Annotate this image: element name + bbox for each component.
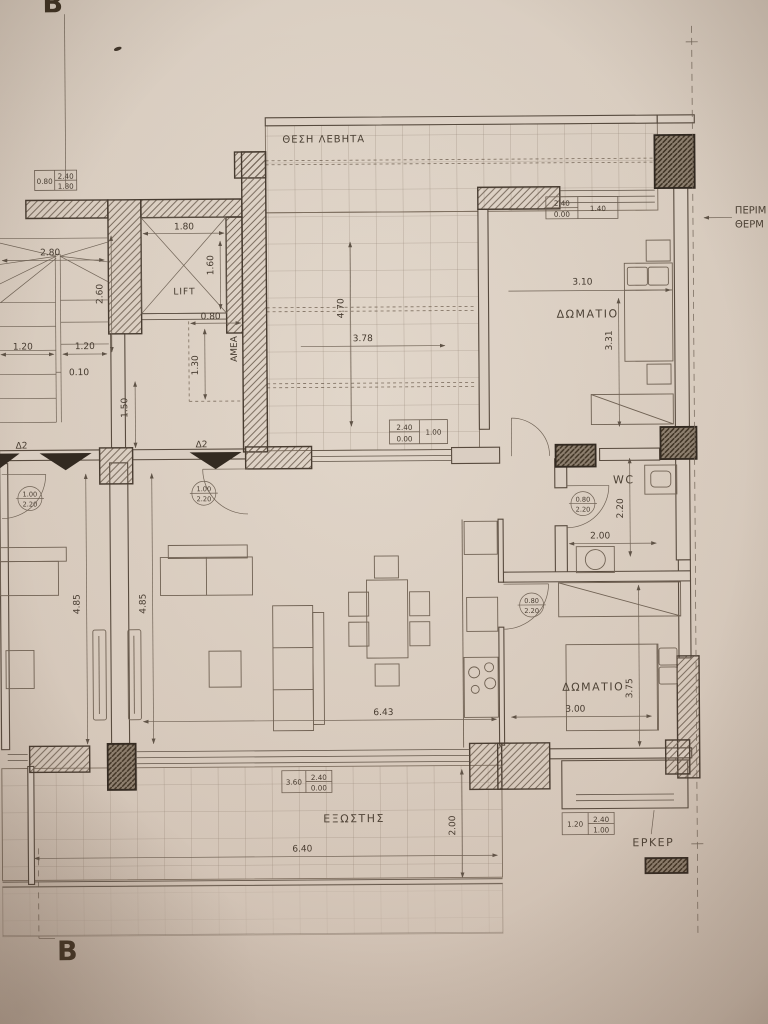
floor-plan-photo: Δ2 Δ2 bbox=[0, 0, 768, 1024]
